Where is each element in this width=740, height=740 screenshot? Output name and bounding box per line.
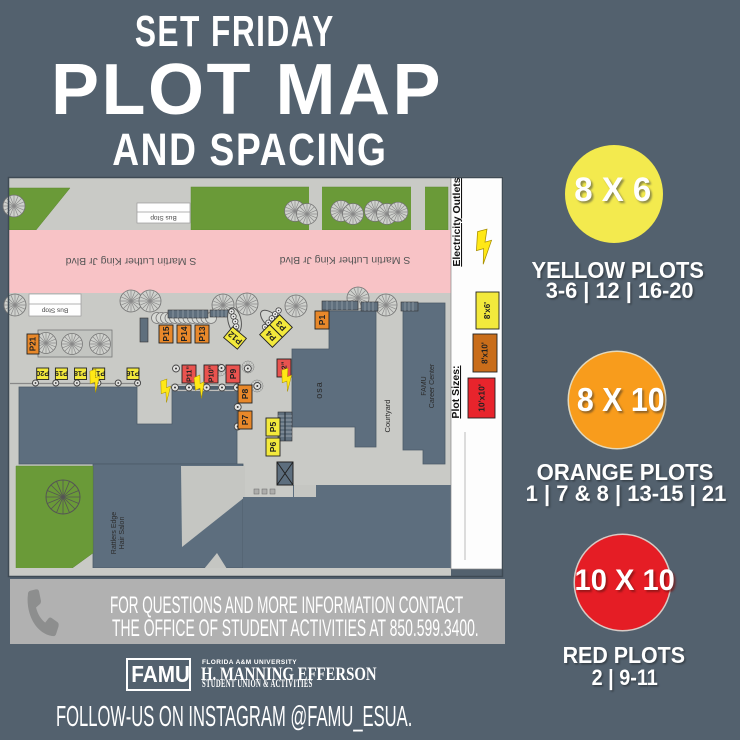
svg-text:S Martin Luther King Jr Blvd: S Martin Luther King Jr Blvd xyxy=(279,254,410,266)
svg-text:osa: osa xyxy=(314,381,324,399)
svg-text:Bus Stop: Bus Stop xyxy=(150,214,177,221)
svg-text:Career Center: Career Center xyxy=(429,363,436,408)
svg-text:S Martin Luther King Jr Blvd: S Martin Luther King Jr Blvd xyxy=(65,255,196,267)
svg-text:P11”: P11” xyxy=(185,366,194,382)
svg-text:Electricity Outlets: Electricity Outlets xyxy=(451,177,463,266)
svg-text:Rattlers Edge: Rattlers Edge xyxy=(111,512,118,555)
svg-text:10'x10': 10'x10' xyxy=(477,384,487,412)
svg-text:Hair Salon: Hair Salon xyxy=(119,517,126,550)
svg-text:FAMU: FAMU xyxy=(421,376,428,395)
svg-text:P15: P15 xyxy=(161,326,171,341)
svg-text:P21: P21 xyxy=(29,336,38,351)
svg-text:P18: P18 xyxy=(74,369,87,378)
svg-text:P20: P20 xyxy=(36,369,49,378)
svg-text:Plot Sizes:: Plot Sizes: xyxy=(450,365,462,418)
svg-text:P5: P5 xyxy=(268,422,278,433)
svg-text:Bus Stop: Bus Stop xyxy=(41,307,68,314)
svg-text:Courtyard: Courtyard xyxy=(383,400,392,433)
svg-text:P7: P7 xyxy=(240,415,250,426)
svg-text:P13: P13 xyxy=(197,326,207,341)
svg-text:P9: P9 xyxy=(228,369,238,380)
svg-text:8'x6': 8'x6' xyxy=(483,302,492,319)
svg-text:P14: P14 xyxy=(179,326,189,341)
svg-text:P10”: P10” xyxy=(207,365,216,382)
svg-text:P8: P8 xyxy=(240,389,250,400)
svg-text:P16: P16 xyxy=(126,369,139,378)
svg-text:P19: P19 xyxy=(55,369,68,378)
svg-text:8'x10': 8'x10' xyxy=(481,342,490,364)
svg-text:P1: P1 xyxy=(317,315,327,326)
svg-text:P6: P6 xyxy=(268,442,278,453)
